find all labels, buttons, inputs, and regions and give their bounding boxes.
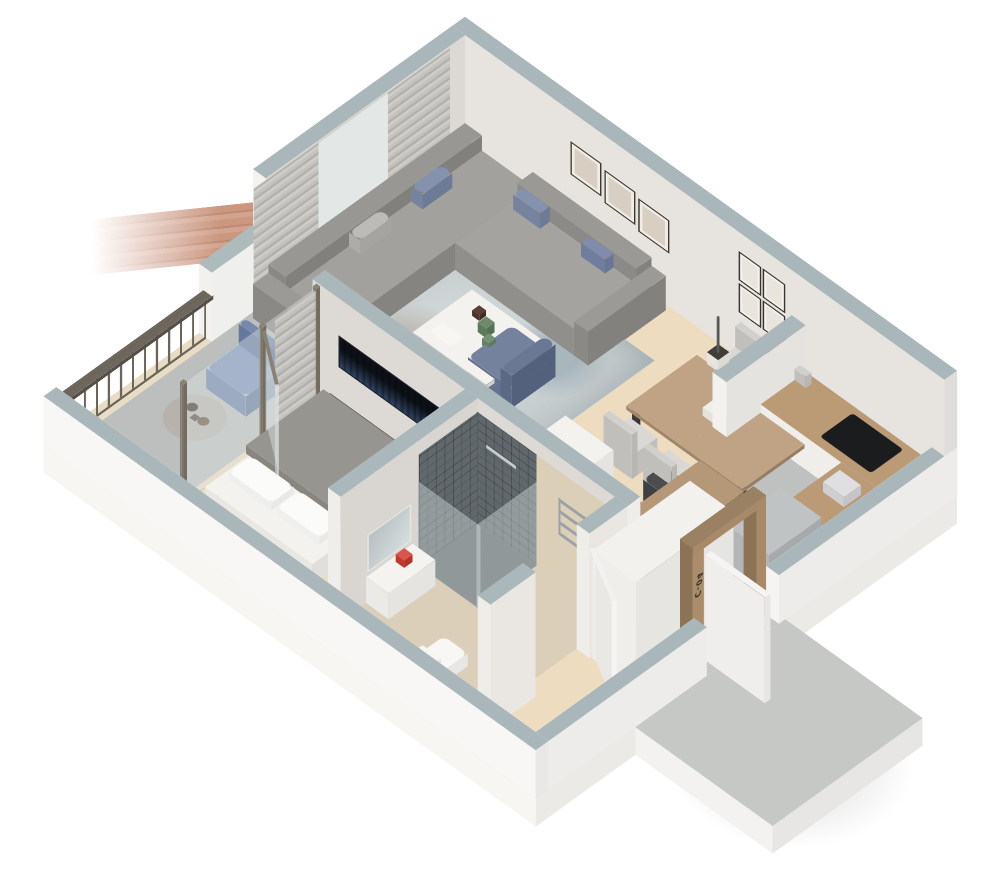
entry-door-open-leaf-e xyxy=(765,594,771,704)
unit-label: C-04 xyxy=(693,569,705,600)
pendant-cord-e xyxy=(718,317,719,353)
dining-chair-3-back-e xyxy=(632,431,638,480)
floorplan-render: C-04 xyxy=(0,0,1000,878)
wall-sw-e xyxy=(536,741,549,799)
wall-bath-hall-n-s xyxy=(577,524,590,658)
